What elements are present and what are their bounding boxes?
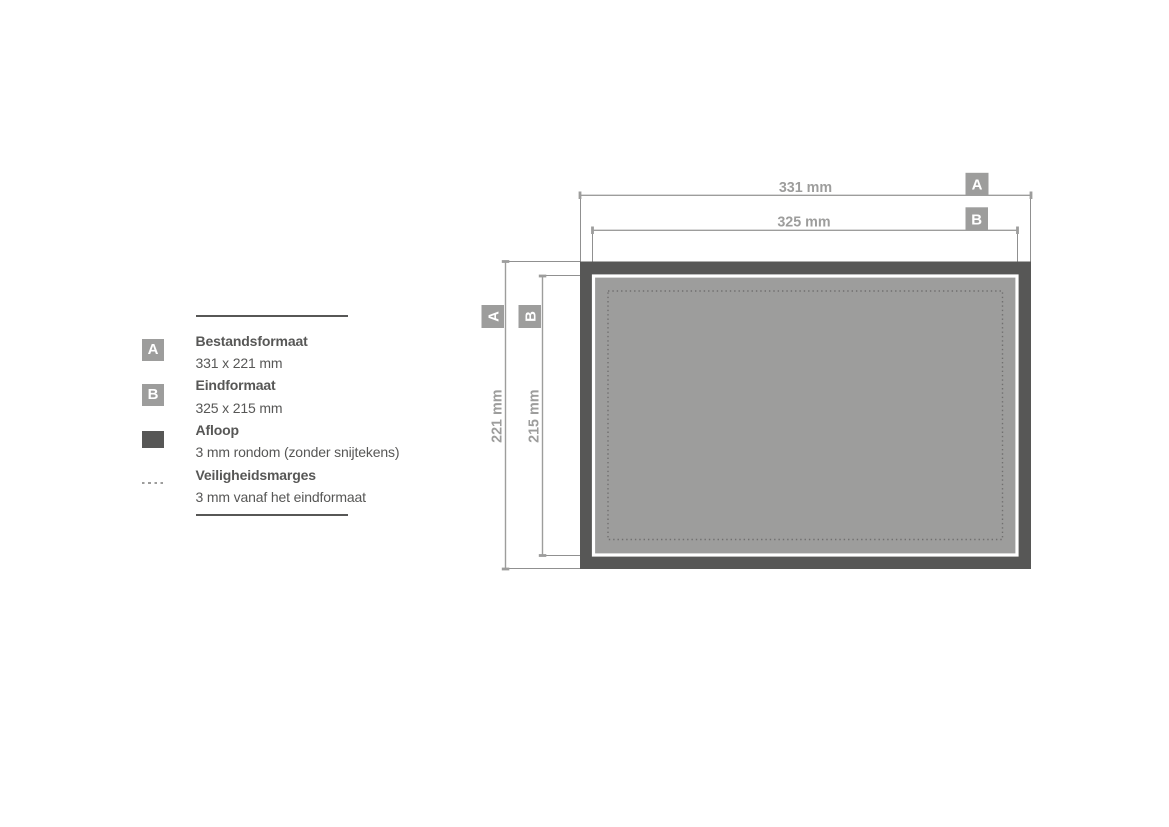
svg-text:221 mm: 221 mm	[490, 390, 506, 443]
svg-text:331 mm: 331 mm	[779, 180, 832, 196]
svg-text:B: B	[522, 311, 539, 322]
svg-text:A: A	[485, 311, 502, 322]
svg-text:215 mm: 215 mm	[527, 390, 543, 443]
svg-text:325 mm: 325 mm	[777, 215, 830, 231]
svg-text:A: A	[972, 177, 983, 194]
svg-text:B: B	[971, 211, 982, 228]
